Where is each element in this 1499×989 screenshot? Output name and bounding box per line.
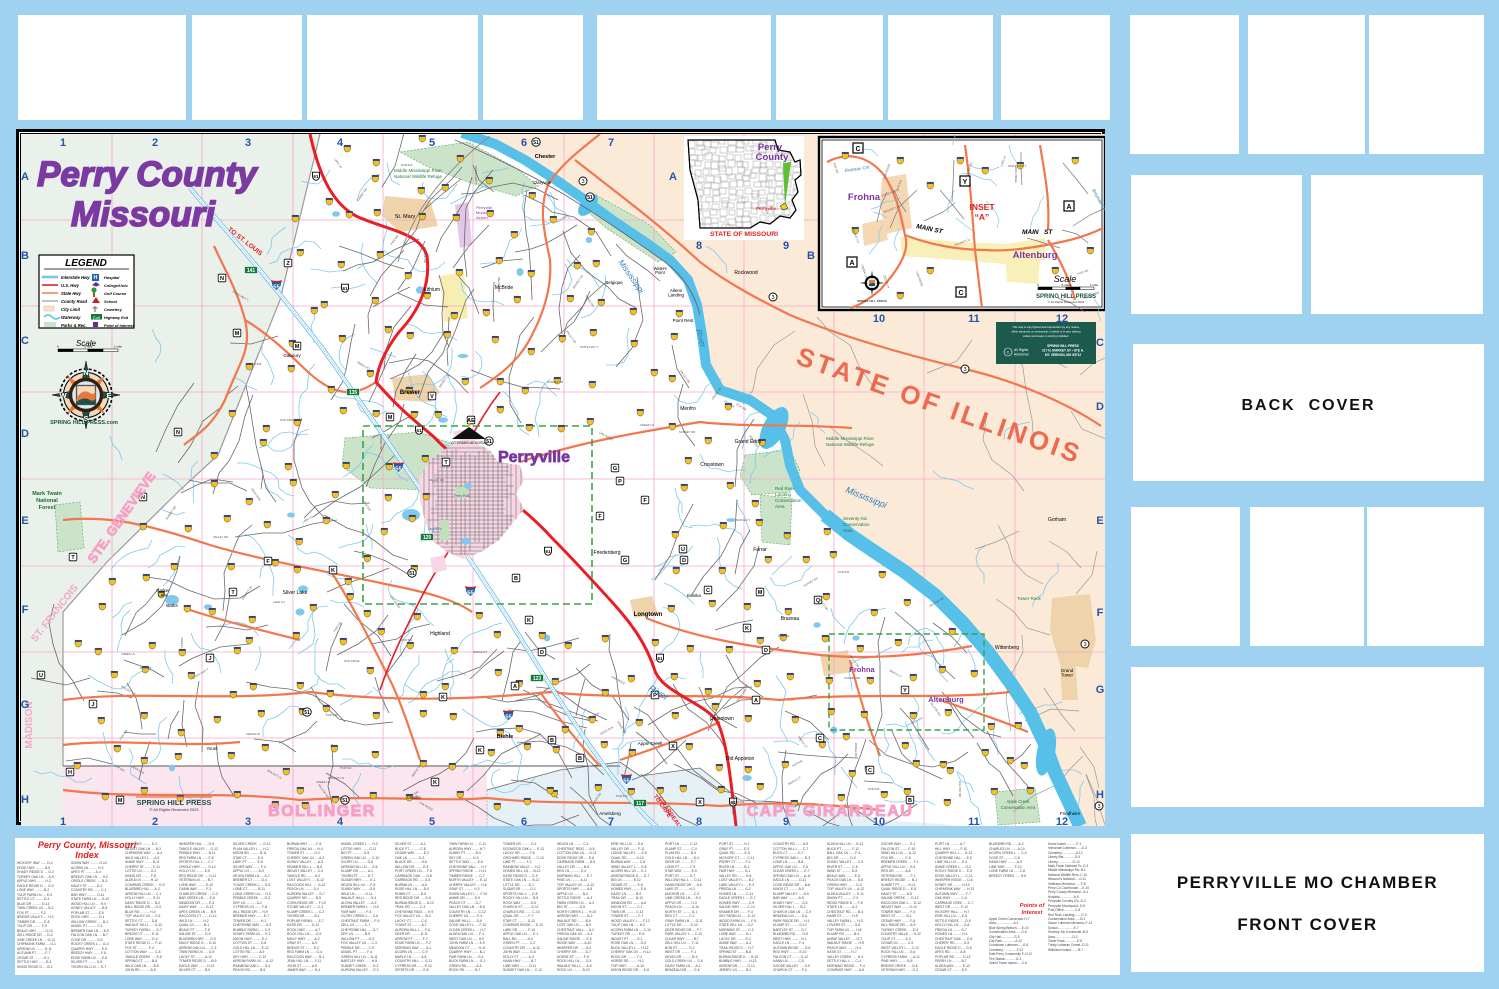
svg-text:G: G xyxy=(623,558,627,564)
svg-text:CEDAR LN: CEDAR LN xyxy=(246,732,260,736)
svg-text:M: M xyxy=(295,344,300,350)
svg-text:D: D xyxy=(540,650,544,656)
svg-text:Uniontown: Uniontown xyxy=(710,716,734,722)
svg-text:PCR 644: PCR 644 xyxy=(733,800,745,804)
svg-text:9: 9 xyxy=(783,816,789,826)
svg-text:X: X xyxy=(698,800,702,806)
svg-text:A: A xyxy=(849,260,854,267)
svg-text:Biehle: Biehle xyxy=(497,734,514,740)
svg-text:SUNSET DR: SUNSET DR xyxy=(679,430,695,434)
svg-text:either electronic or mechanica: either electronic or mechanical, in whol… xyxy=(1011,329,1080,333)
svg-text:Gaboury: Gaboury xyxy=(283,353,301,358)
svg-text:P: P xyxy=(618,479,622,485)
svg-text:STATE HWY T: STATE HWY T xyxy=(580,345,599,349)
svg-text:51: 51 xyxy=(409,571,415,577)
svg-text:SPRING HILL PRESS: SPRING HILL PRESS xyxy=(857,299,887,303)
svg-text:CAPE GIRARDEAU: CAPE GIRARDEAU xyxy=(747,803,914,820)
svg-text:PCR 910: PCR 910 xyxy=(401,163,413,167)
svg-text:Point of Interest: Point of Interest xyxy=(104,323,134,328)
svg-text:School: School xyxy=(104,299,118,304)
svg-text:PCR 806: PCR 806 xyxy=(250,362,262,366)
svg-text:CREEK LN: CREEK LN xyxy=(180,637,184,651)
svg-text:Crosstown: Crosstown xyxy=(700,462,724,468)
svg-text:J: J xyxy=(91,702,94,708)
svg-text:MAPLE CT: MAPLE CT xyxy=(473,650,487,654)
svg-text:Missouri: Missouri xyxy=(71,195,216,234)
svg-text:CREEK LN: CREEK LN xyxy=(640,423,654,427)
svg-text:Highland: Highland xyxy=(430,631,450,637)
svg-text:LEGEND: LEGEND xyxy=(65,258,107,269)
svg-text:11: 11 xyxy=(968,816,980,826)
svg-text:OAK RIDGE: OAK RIDGE xyxy=(344,659,360,663)
svg-text:135: 135 xyxy=(349,390,358,396)
svg-text:K: K xyxy=(745,626,749,632)
svg-text:Waterway: Waterway xyxy=(61,315,81,320)
svg-text:C: C xyxy=(818,736,822,742)
svg-text:INSET: INSET xyxy=(969,202,995,212)
svg-text:A: A xyxy=(21,171,29,183)
svg-text:Perry County: Perry County xyxy=(37,155,258,194)
svg-text:Perryville: Perryville xyxy=(756,206,776,211)
svg-text:Silver Lake: Silver Lake xyxy=(283,590,308,596)
svg-text:HILLTOP RD: HILLTOP RD xyxy=(423,247,427,263)
svg-text:F: F xyxy=(22,604,29,616)
svg-text:9: 9 xyxy=(783,240,789,252)
svg-text:Altenburg: Altenburg xyxy=(928,695,964,704)
svg-text:3: 3 xyxy=(963,367,966,373)
svg-text:LAKE LN: LAKE LN xyxy=(273,600,285,604)
svg-text:Tower Rock: Tower Rock xyxy=(1017,596,1041,601)
svg-text:G: G xyxy=(1096,684,1105,696)
svg-text:B: B xyxy=(550,738,554,744)
svg-text:N: N xyxy=(83,368,88,377)
svg-text:M: M xyxy=(758,590,763,596)
svg-text:HILLTOP RD: HILLTOP RD xyxy=(958,781,962,797)
svg-text:National Wildlife Refuge: National Wildlife Refuge xyxy=(826,442,875,447)
svg-text:U: U xyxy=(39,673,43,679)
svg-text:Landing: Landing xyxy=(775,492,792,497)
svg-text:C: C xyxy=(1007,350,1010,355)
svg-text:SPRING HILL PRESS: SPRING HILL PRESS xyxy=(137,798,212,807)
svg-text:B: B xyxy=(514,576,518,582)
svg-text:Middle Mississippi River: Middle Mississippi River xyxy=(394,168,443,173)
svg-text:E: E xyxy=(106,391,111,400)
svg-text:51: 51 xyxy=(304,710,310,716)
svg-text:3: 3 xyxy=(245,137,251,149)
svg-text:Menfro: Menfro xyxy=(680,406,696,412)
svg-text:5: 5 xyxy=(429,137,435,149)
svg-text:Old Appleton: Old Appleton xyxy=(726,756,755,762)
svg-text:W: W xyxy=(59,391,67,400)
svg-text:Area: Area xyxy=(843,528,853,533)
svg-text:PCR 910: PCR 910 xyxy=(340,766,352,770)
svg-text:3: 3 xyxy=(581,179,584,185)
svg-text:H: H xyxy=(21,794,29,806)
svg-text:A: A xyxy=(754,698,758,704)
svg-text:51: 51 xyxy=(587,195,593,201)
svg-text:F: F xyxy=(1097,607,1104,619)
svg-text:VETERANS MEMORIAL: VETERANS MEMORIAL xyxy=(450,441,487,445)
svg-text:Brewer: Brewer xyxy=(400,390,421,396)
svg-text:3: 3 xyxy=(245,816,251,826)
svg-text:6: 6 xyxy=(521,137,527,149)
svg-text:Red Rock: Red Rock xyxy=(775,486,796,491)
svg-text:County Road: County Road xyxy=(61,299,87,304)
svg-text:Grand Eddy: Grand Eddy xyxy=(735,439,762,445)
svg-text:K: K xyxy=(478,748,482,754)
svg-text:PCR 532: PCR 532 xyxy=(778,634,790,638)
svg-text:4: 4 xyxy=(337,816,344,826)
svg-text:D: D xyxy=(682,558,686,564)
svg-text:7: 7 xyxy=(608,137,614,149)
svg-text:123: 123 xyxy=(533,676,542,682)
svg-text:10: 10 xyxy=(873,313,885,325)
svg-text:Perryville: Perryville xyxy=(498,449,570,466)
svg-text:Hospital: Hospital xyxy=(104,275,120,280)
svg-text:.5 miles: .5 miles xyxy=(1061,283,1072,287)
svg-text:Perry Park: Perry Park xyxy=(454,494,469,498)
svg-text:3: 3 xyxy=(1083,642,1086,648)
svg-text:C: C xyxy=(855,146,860,153)
svg-text:J: J xyxy=(208,656,211,662)
svg-text:Brazeau: Brazeau xyxy=(781,616,800,622)
svg-text:PCR 532: PCR 532 xyxy=(838,570,850,574)
svg-text:Reserved: Reserved xyxy=(1014,353,1029,357)
svg-text:1: 1 xyxy=(60,137,66,149)
svg-text:5: 5 xyxy=(429,816,435,826)
svg-text:Frohna: Frohna xyxy=(849,665,875,674)
svg-text:MAIN ST: MAIN ST xyxy=(1022,229,1053,236)
svg-text:Legion Lk: Legion Lk xyxy=(428,527,442,531)
svg-text:STATE HWY T: STATE HWY T xyxy=(474,166,478,185)
svg-text:Claryville: Claryville xyxy=(533,180,552,185)
svg-text:10: 10 xyxy=(873,816,885,826)
svg-text:E: E xyxy=(1096,515,1103,527)
svg-text:K: K xyxy=(441,695,445,701)
svg-text:K: K xyxy=(433,780,437,786)
svg-text:U.S. Hwy: U.S. Hwy xyxy=(61,283,80,288)
svg-text:Gorham: Gorham xyxy=(1048,517,1066,523)
svg-text:Rockwood: Rockwood xyxy=(734,270,758,276)
svg-text:C: C xyxy=(1096,337,1104,349)
svg-text:National Wildlife Refuge: National Wildlife Refuge xyxy=(394,174,443,179)
svg-text:D: D xyxy=(1096,401,1104,413)
svg-text:County: County xyxy=(756,152,789,163)
svg-text:G: G xyxy=(613,466,617,472)
svg-text:X: X xyxy=(671,744,675,750)
svg-text:8: 8 xyxy=(696,240,702,252)
svg-text:SUNSET DR: SUNSET DR xyxy=(547,380,563,384)
svg-text:D: D xyxy=(21,428,29,440)
svg-text:A: A xyxy=(513,684,517,690)
svg-text:1: 1 xyxy=(60,816,66,826)
svg-text:Apple Creek: Apple Creek xyxy=(1006,799,1030,804)
svg-text:Y: Y xyxy=(963,179,968,186)
svg-text:SUNSET DR: SUNSET DR xyxy=(379,434,383,450)
svg-text:Conservation: Conservation xyxy=(843,522,870,527)
svg-text:C: C xyxy=(706,588,710,594)
svg-text:141: 141 xyxy=(247,268,256,274)
svg-text:College/Univ.: College/Univ. xyxy=(104,283,128,288)
svg-text:11: 11 xyxy=(968,313,980,325)
svg-text:A: A xyxy=(669,171,677,183)
svg-text:© All Rights Reserved 2023: © All Rights Reserved 2023 xyxy=(1048,300,1085,304)
svg-text:Cemetery: Cemetery xyxy=(104,307,123,312)
svg-text:“A”: “A” xyxy=(975,212,990,222)
svg-text:MAPLE CT: MAPLE CT xyxy=(736,518,750,522)
svg-text:B: B xyxy=(807,250,815,262)
svg-text:Farrar: Farrar xyxy=(753,547,767,553)
svg-text:1 mile: 1 mile xyxy=(1090,283,1098,287)
svg-text:Belgique: Belgique xyxy=(605,280,623,285)
svg-text:Exit: Exit xyxy=(93,315,101,320)
svg-text:Highway Exit: Highway Exit xyxy=(104,315,129,320)
svg-text:H: H xyxy=(68,770,72,776)
svg-text:B: B xyxy=(21,250,29,262)
svg-text:Frohna: Frohna xyxy=(848,192,881,203)
svg-text:Eunika: Eunika xyxy=(687,593,701,598)
svg-text:C: C xyxy=(868,768,872,774)
svg-text:RIDGE RD: RIDGE RD xyxy=(854,743,858,757)
svg-text:2: 2 xyxy=(152,137,158,149)
svg-text:OAK RIDGE: OAK RIDGE xyxy=(280,418,296,422)
svg-text:McBride: McBride xyxy=(495,285,514,291)
svg-text:CREEK LN: CREEK LN xyxy=(121,652,135,656)
svg-text:Golf Course: Golf Course xyxy=(104,291,127,296)
svg-text:Interstate Hwy: Interstate Hwy xyxy=(61,275,90,280)
svg-text:Apple Creek: Apple Creek xyxy=(638,741,664,746)
svg-text:2: 2 xyxy=(152,816,158,826)
svg-text:Point Rest: Point Rest xyxy=(673,318,695,323)
svg-text:written permission is strictly: written permission is strictly prohibite… xyxy=(1023,334,1069,338)
svg-text:Point: Point xyxy=(655,270,665,275)
svg-text:STATE OF MISSOURI: STATE OF MISSOURI xyxy=(710,231,778,238)
svg-text:State Hwy: State Hwy xyxy=(61,291,82,296)
svg-text:Seventy-Six: Seventy-Six xyxy=(843,516,868,521)
svg-text:117: 117 xyxy=(636,801,644,807)
svg-text:CREEK LN: CREEK LN xyxy=(316,780,330,784)
svg-text:Barks: Barks xyxy=(166,603,178,608)
svg-text:Longtown: Longtown xyxy=(634,612,663,618)
svg-text:Friedenberg: Friedenberg xyxy=(594,550,621,556)
svg-text:C: C xyxy=(21,335,29,347)
svg-text:Area: Area xyxy=(775,504,785,509)
svg-text:B: B xyxy=(578,756,582,762)
svg-text:M: M xyxy=(235,331,240,337)
svg-text:E: E xyxy=(21,515,28,527)
svg-text:K: K xyxy=(527,618,531,624)
svg-text:Airport: Airport xyxy=(476,215,489,220)
svg-text:Lithium: Lithium xyxy=(424,287,440,293)
svg-text:K: K xyxy=(331,568,335,574)
svg-text:.5 mile: .5 mile xyxy=(84,345,93,349)
svg-text:Mark Twain: Mark Twain xyxy=(32,491,62,497)
svg-text:A: A xyxy=(1066,204,1071,211)
svg-text:Conservation Area: Conservation Area xyxy=(1001,805,1036,810)
svg-text:PCR 644: PCR 644 xyxy=(868,787,880,791)
svg-text:217 N. MARKET ST • STE A.: 217 N. MARKET ST • STE A. xyxy=(1042,348,1084,352)
svg-text:National: National xyxy=(36,498,58,504)
svg-text:OAK RIDGE: OAK RIDGE xyxy=(1014,167,1018,183)
svg-text:N: N xyxy=(176,430,180,436)
svg-text:51: 51 xyxy=(533,140,539,146)
svg-text:This map is copyrighted and re: This map is copyrighted and reproduction… xyxy=(1012,325,1080,329)
svg-text:MT. VERNON, MO 65712: MT. VERNON, MO 65712 xyxy=(1045,353,1082,357)
svg-text:WALNUT LN: WALNUT LN xyxy=(328,776,344,780)
svg-text:H: H xyxy=(94,275,98,281)
svg-text:Forest: Forest xyxy=(39,505,56,511)
svg-text:Wittenberg: Wittenberg xyxy=(995,645,1019,651)
svg-text:PCR 532: PCR 532 xyxy=(616,794,628,798)
svg-text:H: H xyxy=(1096,789,1104,801)
svg-text:Altenburg: Altenburg xyxy=(1013,250,1058,261)
svg-text:SPRING HILL PRESS.com: SPRING HILL PRESS.com xyxy=(50,420,118,426)
svg-text:© All Rights Reserved 2023: © All Rights Reserved 2023 xyxy=(150,807,200,812)
svg-text:6: 6 xyxy=(521,816,527,826)
svg-text:G: G xyxy=(21,699,29,711)
svg-text:Chester: Chester xyxy=(535,154,556,160)
svg-text:12: 12 xyxy=(1056,816,1068,826)
svg-text:7: 7 xyxy=(608,816,614,826)
svg-text:U: U xyxy=(681,547,685,553)
svg-text:VALLEY DR: VALLEY DR xyxy=(213,535,228,539)
svg-text:Lixville: Lixville xyxy=(407,795,421,800)
svg-text:PCR 806: PCR 806 xyxy=(140,666,152,670)
svg-text:PCR 532: PCR 532 xyxy=(401,638,413,642)
svg-text:Y: Y xyxy=(903,688,907,694)
svg-text:Yount: Yount xyxy=(206,746,218,751)
svg-text:St. Mary: St. Mary xyxy=(395,214,416,220)
svg-text:4: 4 xyxy=(337,137,344,149)
svg-text:1 mile: 1 mile xyxy=(114,345,122,349)
svg-text:Tower: Tower xyxy=(1061,673,1074,678)
svg-text:M: M xyxy=(388,415,393,421)
svg-text:SPRING HILL PRESS: SPRING HILL PRESS xyxy=(1047,344,1079,348)
svg-text:M: M xyxy=(118,798,123,804)
svg-text:SUNSET DR: SUNSET DR xyxy=(844,676,860,680)
svg-text:129: 129 xyxy=(423,535,432,541)
svg-text:City Limit: City Limit xyxy=(61,307,81,312)
svg-text:8: 8 xyxy=(696,816,702,826)
svg-text:PCR 644: PCR 644 xyxy=(326,713,338,717)
svg-text:All Rights: All Rights xyxy=(1013,348,1029,352)
svg-text:VALLEY DR: VALLEY DR xyxy=(429,478,444,482)
svg-text:Middle Mississippi River: Middle Mississippi River xyxy=(826,436,875,441)
svg-text:D: D xyxy=(764,648,768,654)
svg-text:Landing: Landing xyxy=(668,293,685,298)
svg-text:Parks & Rec.: Parks & Rec. xyxy=(61,323,87,328)
svg-text:3: 3 xyxy=(1097,804,1100,810)
svg-text:V: V xyxy=(430,394,434,400)
svg-text:BOLLINGER: BOLLINGER xyxy=(268,803,376,820)
svg-text:C: C xyxy=(958,290,963,297)
svg-text:Conservation: Conservation xyxy=(775,498,802,503)
svg-text:N: N xyxy=(220,276,224,282)
svg-text:3: 3 xyxy=(771,295,774,301)
svg-text:Lake: Lake xyxy=(158,593,168,598)
